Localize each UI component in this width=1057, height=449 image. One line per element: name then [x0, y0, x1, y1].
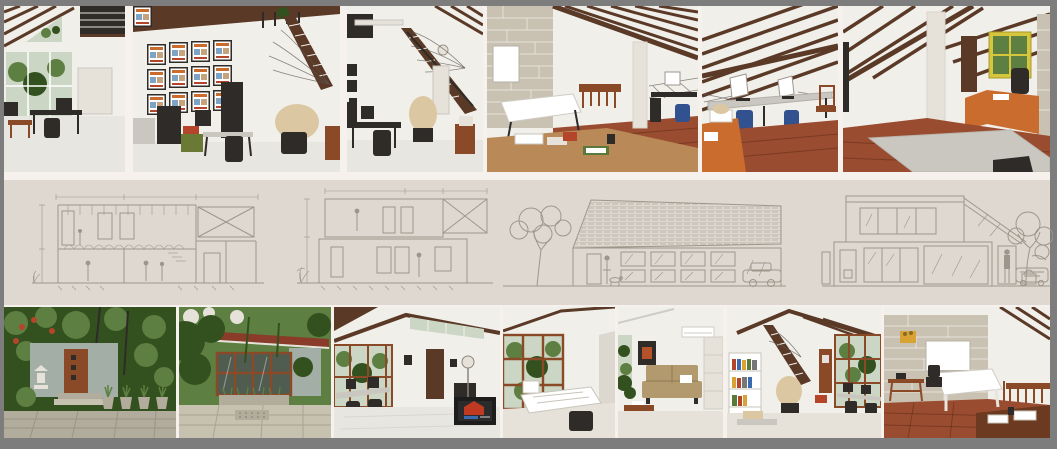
office-chair [1011, 68, 1029, 94]
car-sketch [743, 263, 781, 287]
attic-meeting-scene [843, 6, 1050, 172]
tree-sketch [510, 206, 571, 286]
column [927, 12, 945, 136]
sofa-seat [642, 381, 702, 398]
photo-gable-studio [4, 6, 125, 172]
poster-wall-scene [133, 6, 340, 172]
photo-sofa-lounge [618, 307, 723, 438]
photo-attic-meeting [843, 6, 1050, 172]
desk [347, 122, 401, 128]
dark-door [961, 36, 977, 92]
office-chair [225, 136, 243, 162]
side-desk [888, 379, 924, 383]
monitor [56, 98, 72, 110]
tree-sketch [1008, 212, 1053, 286]
paving [4, 411, 176, 438]
photo-staircase-studio [347, 6, 483, 172]
photo-brick-whiteboard-room [884, 307, 1050, 438]
wooden-bench [579, 84, 621, 92]
monitor [195, 110, 211, 126]
drawing-cross-section [295, 185, 495, 299]
office-chair [373, 130, 391, 156]
sofa-lounge-scene [618, 307, 723, 438]
side-panel [822, 252, 830, 284]
coffee-table [624, 405, 654, 411]
mezzanine-rail [347, 14, 373, 38]
garden-entrance-scene [4, 307, 176, 438]
floor [618, 411, 723, 438]
standing-fan [462, 356, 474, 368]
photo-poster-wall [133, 6, 340, 172]
photo-garden-facade [179, 307, 331, 438]
whiteboard [493, 46, 519, 82]
photo-window-desk [503, 307, 615, 438]
attic-workstations-scene [702, 6, 838, 172]
mezzanine-scene [487, 6, 698, 172]
collage-board [0, 0, 1057, 449]
gable-studio-scene [4, 6, 125, 172]
covered-chair [776, 376, 802, 406]
photo-bookshelf-stair [727, 307, 881, 438]
light-fixture [355, 20, 403, 25]
car-sketch [1016, 268, 1048, 286]
paving [179, 405, 331, 438]
elevation-structure [834, 196, 1026, 286]
monitor [665, 72, 680, 85]
printer [133, 118, 155, 144]
garden-facade-scene [179, 307, 331, 438]
ac-unit [682, 327, 714, 337]
section-structure [319, 199, 487, 283]
photo-mezzanine-drafting [487, 6, 698, 172]
dark-door [426, 349, 444, 399]
figures [78, 229, 164, 281]
planter [219, 395, 289, 405]
office-chair [44, 118, 60, 138]
office-chair [845, 401, 857, 415]
column [633, 42, 647, 128]
staircase-scene [347, 6, 483, 172]
yellow-crate [900, 331, 916, 343]
plant-sketch [33, 271, 40, 283]
drawing-board [730, 74, 748, 98]
blue-chair [675, 104, 690, 122]
drawing-side-elevation [820, 186, 1053, 298]
drawing-longitudinal-section [28, 193, 268, 297]
mezzanine-railing [64, 245, 186, 261]
figures [355, 209, 422, 277]
window-desk-scene [503, 307, 615, 438]
roof-hangers [68, 205, 188, 215]
desk [651, 92, 697, 97]
tiled-roof [573, 200, 781, 248]
office-chair [928, 365, 940, 377]
drawing-front-elevation [503, 190, 788, 298]
photo-garden-entrance [4, 307, 176, 438]
drawing-board [778, 76, 794, 97]
drain-grate [235, 410, 269, 420]
brick-whiteboard-scene [884, 307, 1050, 438]
monitor [361, 106, 374, 119]
stair-rail [1006, 383, 1050, 389]
covered-chair [409, 96, 437, 132]
desk [30, 110, 82, 115]
office-chair [569, 411, 593, 431]
photo-attic-workstations [702, 6, 838, 172]
glass-studio-scene [334, 307, 500, 438]
photo-glass-studio [334, 307, 500, 438]
low-table [737, 419, 777, 425]
shelf-tower [221, 82, 243, 138]
figure [1004, 249, 1010, 283]
bookshelf-stair-scene [727, 307, 881, 438]
